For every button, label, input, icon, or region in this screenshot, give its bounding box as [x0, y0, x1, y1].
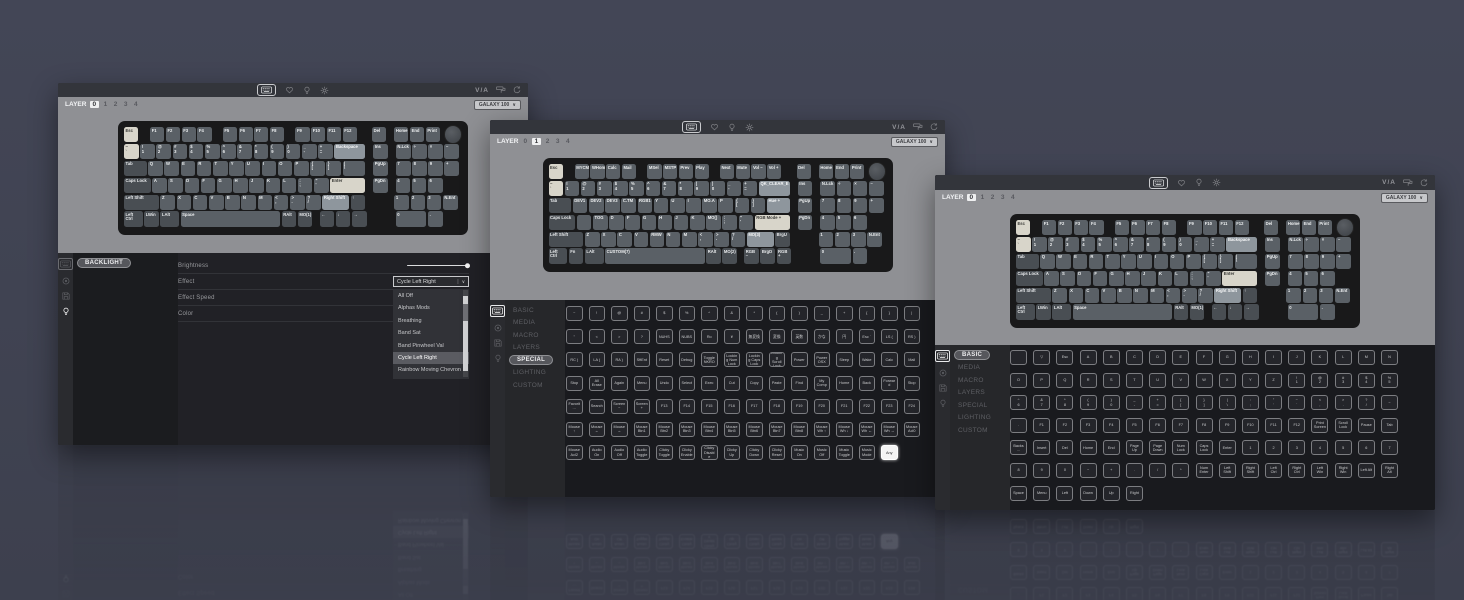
key-button[interactable]: F6 [239, 127, 253, 142]
effect-option[interactable]: Band Sat [393, 327, 469, 339]
keycode-button[interactable]: Forward [881, 376, 898, 391]
key-button[interactable]: J [249, 178, 264, 193]
key-button[interactable]: " ' [739, 215, 754, 230]
keycode-button[interactable]: ! 1 [1288, 373, 1305, 388]
key-button[interactable]: Left Ctrl [549, 248, 568, 263]
key-button[interactable]: H [1125, 271, 1140, 286]
key-button[interactable]: 3 [1319, 288, 1334, 303]
keycode-button[interactable]: Mouse Acl2 [566, 445, 583, 460]
keycode-button[interactable]: Mail [904, 352, 921, 367]
keycode-button[interactable]: ~ [566, 306, 583, 321]
keycode-button[interactable]: Mouse Wh ↑ [814, 422, 831, 437]
key-button[interactable]: End [410, 127, 424, 142]
key-button[interactable]: F5 [1115, 220, 1129, 235]
keycode-button[interactable]: F13 [656, 399, 673, 414]
key-button[interactable]: Esc [549, 164, 563, 179]
keycode-button[interactable]: Mouse ↑ [566, 422, 583, 437]
key-button[interactable]: Q [1040, 254, 1055, 269]
menu-item-lighting[interactable]: LIGHTING [950, 412, 1010, 425]
keycode-button[interactable]: R [1080, 373, 1097, 388]
keycode-button[interactable]: 3 [1288, 440, 1305, 455]
key-button[interactable]: & 7 [1129, 237, 1144, 252]
keycode-button[interactable]: < [589, 329, 606, 344]
save-icon[interactable] [494, 339, 502, 347]
key-button[interactable]: F12 [1235, 220, 1249, 235]
keycode-button[interactable]: Paste [769, 376, 786, 391]
keycode-button[interactable]: Esc [1056, 350, 1073, 365]
key-button[interactable]: @ 2 [581, 181, 596, 196]
key-button[interactable]: 2 [411, 195, 426, 210]
bulb-icon[interactable] [939, 399, 947, 408]
layer-tab-0[interactable]: 0 [522, 138, 529, 145]
key-button[interactable]: Ins [1265, 237, 1280, 252]
key-button[interactable]: 7 [1288, 254, 1303, 269]
bulb-icon[interactable] [494, 354, 502, 363]
layer-tab-2[interactable]: 2 [544, 138, 551, 145]
keycode-button[interactable]: { [859, 306, 876, 321]
key-button[interactable]: − [1336, 237, 1351, 252]
key-button[interactable]: | \ [1235, 254, 1258, 269]
key-button[interactable]: DEV3 [605, 198, 620, 213]
keycode-button[interactable]: Esc ` [859, 329, 876, 344]
key-button[interactable]: _ - [1194, 237, 1209, 252]
keycode-button[interactable]: Stop [904, 376, 921, 391]
key-button[interactable]: F7 [254, 127, 268, 142]
keycode-button[interactable]: NUBS [679, 329, 696, 344]
keycode-button[interactable]: 無変換 [746, 329, 763, 344]
refresh-icon[interactable] [1420, 179, 1428, 187]
theme-icon[interactable] [496, 86, 506, 94]
keycode-button[interactable]: Clicky Reset [769, 445, 786, 460]
refresh-icon[interactable] [513, 86, 521, 94]
key-button[interactable]: & 7 [237, 144, 252, 159]
key-button[interactable]: # 3 [1065, 237, 1080, 252]
key-button[interactable]: QK_CLEAR_E [759, 181, 790, 196]
key-button[interactable]: P [294, 161, 309, 176]
key-button[interactable]: G [217, 178, 232, 193]
keycode-button[interactable]: * [1172, 463, 1189, 478]
key-button[interactable]: { [ [735, 198, 750, 213]
keycode-button[interactable]: K [1311, 350, 1328, 365]
keycode-button[interactable]: F20 [814, 399, 831, 414]
keycode-button[interactable]: F23 [881, 399, 898, 414]
key-button[interactable]: < , [274, 195, 289, 210]
key-button[interactable]: Backspace [1226, 237, 1257, 252]
key-button[interactable]: F [625, 215, 640, 230]
keycode-button[interactable]: S [1103, 373, 1120, 388]
key-button[interactable]: RAlt [706, 248, 721, 263]
keycode-button[interactable]: G [1219, 350, 1236, 365]
key-button[interactable]: N [666, 232, 681, 247]
keycode-button[interactable]: 1 [1242, 440, 1259, 455]
keycode-button[interactable]: Audio On [589, 445, 606, 460]
key-button[interactable]: LWin [1036, 304, 1051, 319]
key-button[interactable]: Del [1264, 220, 1278, 235]
menu-item-special[interactable]: SPECIAL [950, 399, 1010, 412]
keycode-button[interactable]: Clicky Up [724, 445, 741, 460]
keycode-button[interactable]: Mouse Btn3 [679, 422, 696, 437]
keycode-button[interactable]: Mouse Btn5 [724, 422, 741, 437]
keycode-button[interactable]: F8 [1196, 418, 1213, 433]
keycode-button[interactable]: V [1172, 373, 1189, 388]
keycode-button[interactable]: Menu [1033, 486, 1050, 501]
key-button[interactable]: Mute [736, 164, 750, 179]
keycode-button[interactable]: > . [1335, 395, 1352, 410]
effect-option[interactable]: All Off [393, 290, 469, 302]
key-button[interactable]: 5 [1304, 271, 1319, 286]
key-button[interactable]: MO.A [702, 198, 717, 213]
keycode-button[interactable]: % [679, 306, 696, 321]
keycode-button[interactable]: > [611, 329, 628, 344]
keycode-button[interactable]: Mouse Acl0 [904, 422, 921, 437]
keycode-button[interactable]: F19 [791, 399, 808, 414]
keycode-button[interactable]: F21 [836, 399, 853, 414]
key-button[interactable]: → [1244, 304, 1259, 319]
keycode-button[interactable]: Page Down [1149, 440, 1166, 455]
keycode-button[interactable]: Power OSX [814, 352, 831, 367]
key-button[interactable]: A [152, 178, 167, 193]
key-button[interactable]: Home [394, 127, 408, 142]
key-button[interactable]: BrgD [760, 248, 775, 263]
keycode-button[interactable]: F9 [1219, 418, 1236, 433]
key-button[interactable]: Hue + [767, 198, 790, 213]
key-button[interactable]: 8 [412, 161, 427, 176]
menu-item-macro[interactable]: MACRO [950, 374, 1010, 387]
keycode-button[interactable]: + [836, 306, 853, 321]
keycode-button[interactable]: Down [1080, 486, 1097, 501]
keycode-button[interactable]: All Erase [589, 376, 606, 391]
keycode-button[interactable]: SftEnt [634, 352, 651, 367]
key-button[interactable]: Next [720, 164, 734, 179]
key-button[interactable]: 1 [819, 232, 834, 247]
keycode-button[interactable]: Space [1010, 486, 1027, 501]
key-button[interactable]: 8 [1304, 254, 1319, 269]
key-button[interactable]: Home [1286, 220, 1300, 235]
key-button[interactable]: Y [1121, 254, 1136, 269]
key-button[interactable]: Left Ctrl [124, 211, 143, 226]
keycode-button[interactable]: Up [1103, 486, 1120, 501]
key-button[interactable]: C [1085, 288, 1100, 303]
key-button[interactable]: WHom [590, 164, 604, 179]
key-button[interactable]: Caps Lock [1016, 271, 1043, 286]
key-button[interactable]: Play [695, 164, 709, 179]
keycode-button[interactable]: F1 [1033, 418, 1050, 433]
keycode-button[interactable]: Scroll Lock [1335, 418, 1352, 433]
keycode-button[interactable]: Mouse Wh ↓ [836, 422, 853, 437]
keycode-button[interactable]: Cut [724, 376, 741, 391]
keycode-button[interactable]: Right Win [1335, 463, 1352, 478]
key-button[interactable]: * 8 [1146, 237, 1161, 252]
key-button[interactable]: PgUp [1265, 254, 1280, 269]
key-button[interactable]: Space [1073, 304, 1173, 319]
keycode-button[interactable]: # 3 [1335, 373, 1352, 388]
keycode-button[interactable]: _ [814, 306, 831, 321]
keycode-button[interactable]: Tab [1381, 418, 1398, 433]
menu-item-basic[interactable]: BASIC [505, 304, 565, 317]
keycode-button[interactable]: Favorit… [566, 399, 583, 414]
key-button[interactable]: ↓ [336, 211, 351, 226]
keycode-button[interactable]: Debug [679, 352, 696, 367]
keycode-button[interactable]: * 8 [1056, 395, 1073, 410]
keycode-button[interactable]: Left Ctrl [1265, 463, 1282, 478]
keycode-button[interactable]: LS ( [881, 329, 898, 344]
key-button[interactable]: D [609, 215, 624, 230]
key-button[interactable]: H [233, 178, 248, 193]
keycode-button[interactable]: F [1196, 350, 1213, 365]
key-button[interactable]: F6 [1131, 220, 1145, 235]
keycode-button[interactable]: " ' [1265, 395, 1282, 410]
key-button[interactable]: − [869, 181, 884, 196]
key-button[interactable]: F8 [1162, 220, 1176, 235]
keycode-button[interactable]: 6 [1358, 440, 1375, 455]
key-button[interactable]: F10 [311, 127, 325, 142]
layer-tab-4[interactable]: 4 [132, 101, 139, 108]
key-button[interactable]: End [835, 164, 849, 179]
keycode-button[interactable]: Music Mode [859, 445, 876, 460]
key-button[interactable]: 7 [396, 161, 411, 176]
keycode-button[interactable]: Right Ctrl [1288, 463, 1305, 478]
key-button[interactable]: ! 1 [565, 181, 580, 196]
keycode-button[interactable]: F5 [1126, 418, 1143, 433]
keycode-button[interactable]: + [1103, 463, 1120, 478]
key-button[interactable]: _ - [727, 181, 742, 196]
keycode-button[interactable]: Mouse Wh → [881, 422, 898, 437]
key-button[interactable]: Right Shift [1214, 288, 1241, 303]
key-button[interactable]: Z [1052, 288, 1067, 303]
key-button[interactable]: ( 9 [694, 181, 709, 196]
keycode-button[interactable]: + = [1149, 395, 1166, 410]
key-button[interactable]: ^ 6 [1113, 237, 1128, 252]
keycode-button[interactable]: A [1080, 350, 1097, 365]
key-button[interactable]: MO() [706, 215, 721, 230]
key-button[interactable]: I [1154, 254, 1169, 269]
layer-tab-0[interactable]: 0 [90, 101, 99, 108]
key-button[interactable]: C [617, 232, 632, 247]
key-button[interactable]: 0 [820, 248, 851, 263]
keycode-button[interactable]: Wake [859, 352, 876, 367]
keycode-button[interactable]: − [1080, 463, 1097, 478]
key-button[interactable]: Z [160, 195, 175, 210]
key-button[interactable]: Print [850, 164, 864, 179]
layer-tab-3[interactable]: 3 [999, 194, 1006, 201]
key-button[interactable]: F9 [295, 127, 309, 142]
keycode-button[interactable]: D [1149, 350, 1166, 365]
key-button[interactable]: Del [797, 164, 811, 179]
layer-tab-2[interactable]: 2 [112, 101, 119, 108]
key-button[interactable]: Caps Lock [549, 215, 576, 230]
keycode-button[interactable]: ? / [1358, 395, 1375, 410]
key-button[interactable]: P [718, 198, 733, 213]
key-button[interactable]: 8 [837, 198, 852, 213]
keymap-icon[interactable] [58, 258, 73, 270]
keycode-button[interactable]: ( [769, 306, 786, 321]
refresh-icon[interactable] [930, 123, 938, 131]
key-button[interactable]: MO(1) [1190, 304, 1205, 319]
key-button[interactable]: $ 4 [189, 144, 204, 159]
keycode-button[interactable]: Stop [566, 376, 583, 391]
key-button[interactable] [577, 215, 592, 230]
keycode-button[interactable]: Backs… [1010, 440, 1027, 455]
layer-tab-1[interactable]: 1 [102, 101, 109, 108]
keycode-button[interactable]: 4 [1311, 440, 1328, 455]
key-button[interactable]: × [428, 144, 443, 159]
keycode-button[interactable]: Print Screen [1311, 418, 1328, 433]
key-button[interactable]: 1 [1286, 288, 1301, 303]
keycode-button[interactable]: Y [1242, 373, 1259, 388]
key-button[interactable]: F1 [150, 127, 164, 142]
keycode-button[interactable]: W [1196, 373, 1213, 388]
key-button[interactable]: F4 [197, 127, 211, 142]
key-button[interactable]: G [1109, 271, 1124, 286]
key-button[interactable]: ? / [731, 232, 746, 247]
keycode-button[interactable]: ) 0 [1103, 395, 1120, 410]
keycode-button[interactable]: & 7 [1033, 395, 1050, 410]
key-button[interactable]: TOG [593, 215, 608, 230]
slider-knob[interactable] [465, 263, 471, 269]
keycode-button[interactable]: ▽ [1033, 350, 1050, 365]
key-button[interactable]: RAlt [282, 211, 297, 226]
key-button[interactable]: U [1137, 254, 1152, 269]
key-button[interactable]: Left Ctrl [1016, 304, 1035, 319]
key-button[interactable]: PgUp [798, 198, 813, 213]
key-button[interactable]: . [1320, 304, 1335, 319]
key-button[interactable]: MYCM [575, 164, 589, 179]
keycode-button[interactable]: F17 [746, 399, 763, 414]
key-button[interactable]: Vol − [751, 164, 765, 179]
key-button[interactable]: MO(3) [747, 232, 774, 247]
key-button[interactable]: + = [1210, 237, 1225, 252]
key-button[interactable]: ~ ` [549, 181, 564, 196]
key-button[interactable]: Tab [124, 161, 147, 176]
menu-item-layers[interactable]: LAYERS [505, 342, 565, 355]
key-button[interactable]: O [1170, 254, 1185, 269]
key-button[interactable]: ↓ [1228, 304, 1243, 319]
keycode-button[interactable]: Audio Toggle [634, 445, 651, 460]
keycode-button[interactable]: 0 [1056, 463, 1073, 478]
keycode-button[interactable]: ~ ` [1288, 395, 1305, 410]
key-button[interactable]: ÷ [1304, 237, 1319, 252]
key-button[interactable]: N [241, 195, 256, 210]
key-button[interactable]: ! 1 [140, 144, 155, 159]
key-button[interactable]: X [1069, 288, 1084, 303]
keycode-button[interactable]: F15 [701, 399, 718, 414]
key-button[interactable]: R [197, 161, 212, 176]
key-button[interactable]: # 3 [597, 181, 612, 196]
key-button[interactable]: < , [1166, 288, 1181, 303]
key-button[interactable]: Q [148, 161, 163, 176]
keycode-button[interactable]: Sleep [836, 352, 853, 367]
key-button[interactable]: Vol + [767, 164, 781, 179]
keycode-button[interactable]: F4 [1103, 418, 1120, 433]
keycode-button[interactable]: O [1010, 373, 1027, 388]
key-button[interactable]: U [245, 161, 260, 176]
key-button[interactable]: X [601, 232, 616, 247]
keycode-button[interactable]: < , [1311, 395, 1328, 410]
key-button[interactable]: # 3 [173, 144, 188, 159]
key-button[interactable]: F2 [166, 127, 180, 142]
key-button[interactable]: LWin [144, 211, 159, 226]
menu-item-macro[interactable]: MACRO [505, 329, 565, 342]
key-button[interactable]: × [853, 181, 868, 196]
keycode-button[interactable]: F7 [1172, 418, 1189, 433]
effect-option[interactable]: Breathing [393, 315, 469, 327]
keycode-button[interactable]: : ; [1242, 395, 1259, 410]
keycode-button[interactable]: Copy [746, 376, 763, 391]
keycode-button[interactable]: Home [1080, 440, 1097, 455]
key-button[interactable]: DEV1 [573, 198, 588, 213]
key-button[interactable]: N.Ent [443, 195, 458, 210]
keycode-button[interactable]: RA ) [611, 352, 628, 367]
key-button[interactable]: N.Ent [867, 232, 882, 247]
keycode-button[interactable]: N [1381, 350, 1398, 365]
key-button[interactable]: ~ ` [1016, 237, 1031, 252]
key-button[interactable]: Calc [606, 164, 620, 179]
key-button[interactable]: Esc [1016, 220, 1030, 235]
keycode-button[interactable]: J [1288, 350, 1305, 365]
key-button[interactable]: RGB Mode + [755, 215, 790, 230]
key-button[interactable]: + [1336, 254, 1351, 269]
keycode-button[interactable]: Music Toggle [836, 445, 853, 460]
keycode-button[interactable]: Screen − [611, 399, 628, 414]
keycode-button[interactable] [1010, 350, 1027, 365]
key-button[interactable]: → [352, 211, 367, 226]
keycode-button[interactable]: T [1126, 373, 1143, 388]
save-icon[interactable] [939, 384, 947, 392]
keycode-button[interactable]: Num Lock [1172, 440, 1189, 455]
scroll-up-arrow[interactable] [463, 290, 468, 296]
key-button[interactable]: 0 [1288, 304, 1319, 319]
key-button[interactable]: { [ [1202, 254, 1217, 269]
key-button[interactable]: LAlt [585, 248, 604, 263]
key-button[interactable]: Y [654, 198, 669, 213]
keycode-button[interactable]: かな [814, 329, 831, 344]
key-button[interactable]: L [282, 178, 297, 193]
keycode-button[interactable]: Locking Caps Lock [746, 352, 763, 367]
key-button[interactable]: PgDn [1265, 271, 1280, 286]
menu-item-basic[interactable]: BASIC [950, 349, 1010, 362]
disc-icon[interactable] [939, 369, 947, 377]
device-select[interactable]: GALAXY 100∨ [474, 100, 521, 110]
key-button[interactable]: ( 9 [1162, 237, 1177, 252]
keycode-button[interactable]: ¥ [724, 329, 741, 344]
dropdown-scrollbar[interactable] [463, 290, 468, 377]
key-button[interactable]: E [1073, 254, 1088, 269]
key-button[interactable]: − [444, 144, 459, 159]
key-button[interactable]: RGB − [744, 248, 759, 263]
key-button[interactable]: S [1060, 271, 1075, 286]
menu-item-custom[interactable]: CUSTOM [505, 379, 565, 392]
keycode-button[interactable]: Any [881, 445, 898, 460]
key-button[interactable]: 2 [1303, 288, 1318, 303]
key-button[interactable]: Left Shift [1016, 288, 1051, 303]
key-button[interactable]: A [1044, 271, 1059, 286]
keycode-button[interactable]: Screen + [634, 399, 651, 414]
keycode-button[interactable]: & [724, 306, 741, 321]
keycode-button[interactable]: @ 2 [1311, 373, 1328, 388]
key-button[interactable]: 9 [428, 161, 443, 176]
keycode-button[interactable]: 変換 [769, 329, 786, 344]
keycode-button[interactable]: ^ 6 [1010, 395, 1027, 410]
key-button[interactable]: < , [698, 232, 713, 247]
keycode-button[interactable]: P [1033, 373, 1050, 388]
keycode-button[interactable]: Mouse Btn1 [634, 422, 651, 437]
key-button[interactable]: 3 [427, 195, 442, 210]
key-button[interactable]: 5 [412, 178, 427, 193]
keycode-button[interactable]: / [1149, 463, 1166, 478]
keycode-button[interactable]: NUHS [656, 329, 673, 344]
key-button[interactable]: RAlt [1174, 304, 1189, 319]
keycode-button[interactable]: Again [611, 376, 628, 391]
